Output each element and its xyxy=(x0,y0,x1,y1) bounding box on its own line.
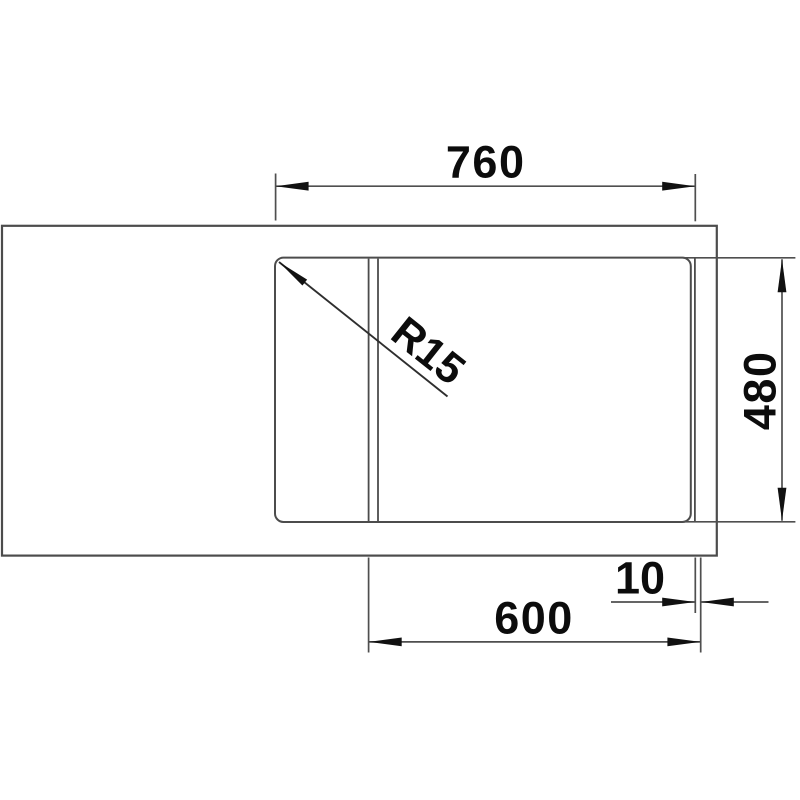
svg-text:480: 480 xyxy=(735,351,786,431)
svg-text:10: 10 xyxy=(615,553,665,604)
svg-text:600: 600 xyxy=(494,593,574,644)
svg-text:760: 760 xyxy=(446,137,526,188)
